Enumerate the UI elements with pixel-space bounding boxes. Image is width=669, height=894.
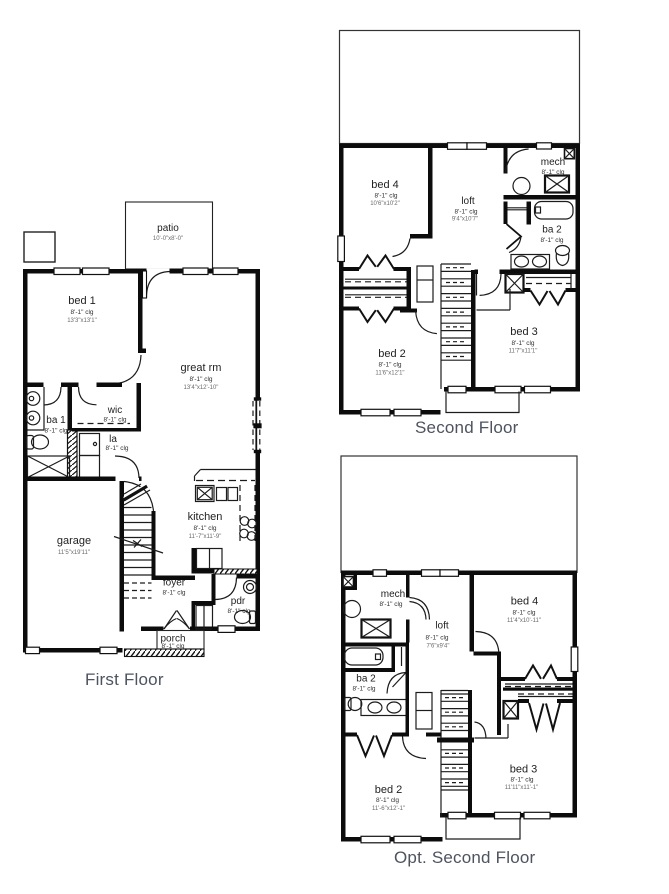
- svg-text:patio: patio: [157, 223, 179, 234]
- svg-text:bed 4: bed 4: [371, 179, 399, 191]
- svg-text:loft: loft: [435, 621, 449, 632]
- svg-text:11'11"x11'-1": 11'11"x11'-1": [505, 785, 539, 791]
- svg-text:8'-1" clg: 8'-1" clg: [540, 237, 563, 244]
- svg-text:8'-1" clg: 8'-1" clg: [70, 309, 93, 316]
- svg-text:13'4"x12'-10": 13'4"x12'-10": [184, 385, 219, 391]
- svg-text:11'-7"x11'-9": 11'-7"x11'-9": [189, 534, 222, 540]
- svg-text:8'-1" clg: 8'-1" clg: [379, 601, 402, 608]
- svg-text:8'-1" clg: 8'-1" clg: [105, 445, 128, 452]
- svg-text:First Floor: First Floor: [85, 670, 164, 689]
- svg-text:ba 1: ba 1: [46, 415, 66, 426]
- svg-text:pdr: pdr: [231, 596, 246, 607]
- svg-text:Second Floor: Second Floor: [415, 418, 519, 437]
- svg-text:11'7"x11'1": 11'7"x11'1": [509, 349, 538, 355]
- svg-text:bed 2: bed 2: [375, 784, 403, 796]
- svg-text:8'-1" clg: 8'-1" clg: [425, 635, 448, 642]
- svg-text:8'-1" clg: 8'-1" clg: [510, 777, 533, 784]
- svg-text:8'-1" clg: 8'-1" clg: [511, 340, 534, 347]
- svg-text:bed 1: bed 1: [68, 295, 96, 307]
- svg-text:loft: loft: [461, 196, 475, 207]
- svg-text:8'-1" clg: 8'-1" clg: [103, 417, 126, 424]
- svg-text:great rm: great rm: [181, 362, 222, 374]
- svg-text:8'-1" clg: 8'-1" clg: [454, 209, 477, 216]
- svg-text:11'5"x19'11": 11'5"x19'11": [58, 550, 90, 556]
- svg-text:8'-1" clg: 8'-1" clg: [162, 590, 185, 597]
- svg-text:7'6"x9'4": 7'6"x9'4": [427, 644, 450, 650]
- svg-text:bed 2: bed 2: [378, 348, 406, 360]
- svg-text:11'6"x12'1": 11'6"x12'1": [375, 371, 404, 377]
- svg-text:8'-1" clg: 8'-1" clg: [352, 686, 375, 693]
- svg-text:11'4"x10'-11": 11'4"x10'-11": [507, 618, 541, 624]
- svg-text:wic: wic: [107, 405, 122, 416]
- svg-text:10'6"x10'2": 10'6"x10'2": [370, 201, 400, 207]
- svg-text:8'-1" clg: 8'-1" clg: [193, 525, 216, 532]
- svg-text:8'-1" clg: 8'-1" clg: [189, 376, 212, 383]
- svg-text:Opt. Second Floor: Opt. Second Floor: [394, 848, 535, 867]
- svg-text:10'-0"x8'-0": 10'-0"x8'-0": [153, 236, 183, 242]
- svg-text:bed 4: bed 4: [511, 596, 539, 608]
- svg-text:bed 3: bed 3: [510, 326, 538, 338]
- svg-text:8'-1" clg: 8'-1" clg: [376, 797, 399, 804]
- svg-text:ba 2: ba 2: [356, 674, 376, 685]
- svg-text:8'-1" clg: 8'-1" clg: [512, 610, 535, 617]
- svg-text:bed 3: bed 3: [510, 764, 538, 776]
- svg-text:8'-1" clg: 8'-1" clg: [378, 362, 401, 369]
- svg-text:mech: mech: [381, 589, 405, 600]
- svg-text:mech: mech: [541, 157, 565, 168]
- svg-text:ba 2: ba 2: [542, 225, 562, 236]
- svg-text:garage: garage: [57, 535, 91, 547]
- svg-text:kitchen: kitchen: [188, 511, 223, 523]
- svg-text:8'-1" clg: 8'-1" clg: [374, 193, 397, 200]
- svg-text:8'-1" clg: 8'-1" clg: [44, 428, 67, 435]
- svg-text:la: la: [109, 434, 117, 445]
- svg-text:13'3"x13'1": 13'3"x13'1": [67, 318, 97, 324]
- svg-text:9'4"x10'7": 9'4"x10'7": [452, 217, 478, 223]
- svg-text:11'-6"x12'-1": 11'-6"x12'-1": [372, 806, 405, 812]
